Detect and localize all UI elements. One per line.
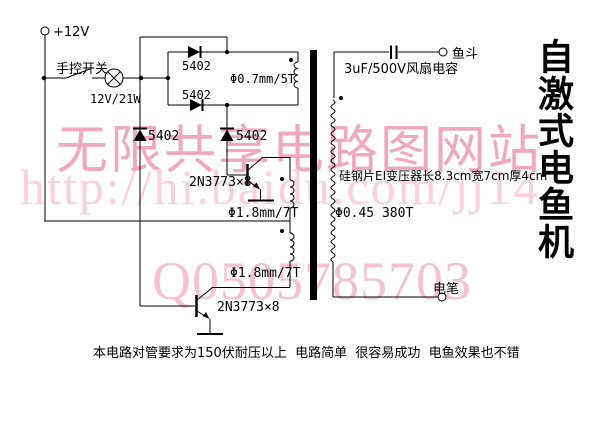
fish-bucket-terminal	[439, 48, 447, 56]
diode-box-top-label: 5402	[182, 59, 211, 73]
capacitor-label: 3uF/500V风扇电容	[344, 61, 458, 77]
diode-left-label: 5402	[148, 129, 179, 144]
supply-label: +12V	[53, 25, 89, 40]
q2-emitter-ground	[197, 311, 210, 333]
transformer-core-bar	[310, 50, 317, 300]
primary-upper-label: Φ1.8mm/7T	[228, 206, 299, 221]
feedback-winding-label: Φ0.7mm/5T	[230, 72, 295, 86]
diode-left-icon	[133, 129, 147, 142]
transistor-upper-label: 2N3773×8	[189, 175, 252, 190]
schematic-canvas: +12V 手控开关 12V/21W 5402 5402 Φ0.7mm/5T 54…	[0, 0, 614, 435]
q1-collector-wire	[248, 157, 290, 180]
secondary-bottom-wire	[333, 262, 438, 297]
lamp-label: 12V/21W	[90, 92, 141, 106]
diode-right-label: 5402	[236, 129, 267, 144]
bottom-note: 本电路对管要求为150伏耐压以上 电路简单 很容易成功 电鱼效果也不错	[93, 345, 520, 361]
electro-pen-label: 电笔	[433, 281, 459, 297]
diode-box-top-icon	[188, 46, 201, 58]
transistor-lower-label: 2N3773×8	[217, 300, 280, 315]
circuit-diagram-page: 无限共享电路图网站 http://hi.baidu.com/jj14 Q0505…	[0, 0, 614, 435]
diode-right-icon	[220, 129, 234, 142]
fish-bucket-label: 鱼斗	[452, 46, 478, 62]
primary-winding-lower-coil	[290, 233, 294, 261]
secondary-winding-label: Φ0.45 380T	[335, 206, 413, 221]
core-note-label: 硅钢片EI变压器长8.3cm宽7cm厚4cm	[339, 168, 547, 183]
page-title: 自激式电鱼机	[527, 38, 579, 278]
diode-box-bottom-label: 5402	[182, 88, 211, 102]
primary-winding-upper-coil	[290, 180, 294, 208]
secondary-winding-coil	[331, 100, 335, 262]
capacitor-icon	[391, 46, 397, 60]
left-drive-rail	[140, 37, 227, 306]
supply-terminal	[41, 27, 49, 35]
primary-lower-label: Φ1.8mm/7T	[230, 266, 301, 281]
manual-switch-label: 手控开关	[56, 62, 108, 77]
